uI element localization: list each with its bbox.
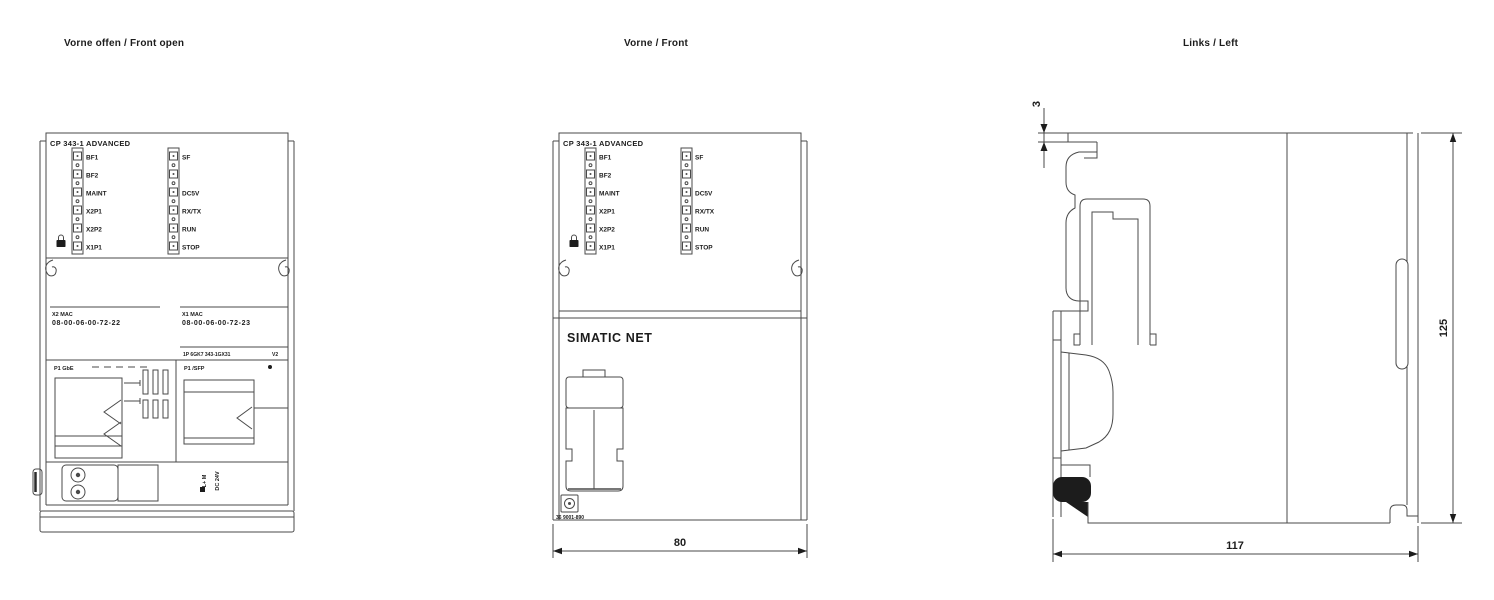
led-dot [173,227,175,229]
led-label: X1P1 [86,245,102,252]
rj45-jack-right [184,380,254,444]
din-rail-hook-profile [1053,142,1097,517]
led-label: BF1 [599,155,612,162]
led-label: BF2 [599,173,612,180]
led-strip-rivet [589,182,592,185]
dimension-top-ledge-3: 3 [1031,101,1048,168]
led-dot [590,245,592,247]
hinge-icon [559,260,570,276]
dimension-arrow [1450,514,1456,523]
led-strip-rivet [589,218,592,221]
led-strip-rivet [172,218,175,221]
led-strip-rivet [76,200,79,203]
fixing-screw-icon [561,495,578,512]
led-label: DC5V [695,191,713,198]
mac-a-value: 08-00-06-00-72-22 [52,320,121,327]
contact-stubs [124,380,140,404]
rear-foot [1390,505,1418,523]
led-label: X1P1 [599,245,615,252]
led-label: STOP [695,245,713,252]
led-strip: SFDC5VRX/TXRUNSTOP [681,148,715,254]
handle-groove [1396,259,1408,369]
led-strip-rivet [76,164,79,167]
brand-label: SIMATIC NET [567,331,653,345]
order-line: 1P 6GK7 343-1GX31 [183,352,231,358]
view-title-front-open: Vorne offen / Front open [64,38,184,49]
view-title-front: Vorne / Front [624,38,689,49]
led-strip-rivet [76,218,79,221]
front-open-view: CP 343-1 ADVANCED BF1BF2MAINTX2P1X2P2X1P… [33,133,294,532]
led-dot [77,155,79,157]
port-compartment: P1 GbE P1 /SFP [46,360,288,462]
vent-slots [143,370,168,418]
led-strip: SFDC5VRX/TXRUNSTOP [168,148,202,254]
locking-screw [1053,477,1091,502]
jack-latch [104,400,121,446]
led-dot [590,155,592,157]
led-dot [77,173,79,175]
led-strip-rivet [685,200,688,203]
led-label: BF1 [86,155,99,162]
indicator-dot [268,365,272,369]
led-label: X2P1 [599,209,615,216]
led-strip-rivet [172,182,175,185]
led-dot [686,173,688,175]
model-label: CP 343-1 ADVANCED [563,139,644,148]
mac-b-value: 08-00-06-00-72-23 [182,320,251,327]
connector-frame [1074,199,1156,345]
led-strip-rivet [76,182,79,185]
led-dot [173,245,175,247]
led-dot [590,227,592,229]
led-label: DC5V [182,191,200,198]
led-strip-rivet [172,236,175,239]
led-strip-rivet [589,200,592,203]
left-side-view: 3 125 117 [1031,101,1462,562]
led-dot [686,155,688,157]
dimension-arrow [1450,133,1456,142]
power-marker-icon [200,487,205,492]
led-strip-rivet [685,218,688,221]
dimension-arrow [1041,124,1048,133]
panel-outline [559,133,801,311]
led-dot [686,227,688,229]
bottom-edge [1088,502,1418,523]
power-terminal-block: L+ M DC 24V [62,465,221,501]
dimension-value: 80 [674,537,686,549]
mac-a-label: X2 MAC [52,312,73,318]
led-label: MAINT [599,191,620,198]
led-label: BF2 [86,173,99,180]
drawing-svg: Vorne offen / Front open Vorne / Front L… [0,0,1494,600]
dimension-arrow [1053,551,1062,557]
led-label: X2P2 [86,227,102,234]
dimension-arrow [1041,142,1048,151]
front-view: CP 343-1 ADVANCED BF1BF2MAINTX2P1X2P2X1P… [553,133,807,558]
terminal-outline [62,465,118,501]
model-label: CP 343-1 ADVANCED [50,139,131,148]
led-dot [77,227,79,229]
led-dot [173,155,175,157]
led-dot [686,191,688,193]
led-strip-rivet [76,236,79,239]
led-dot [590,173,592,175]
terminal-polarity-label: L+ M [202,474,208,487]
led-strip-rivet [589,164,592,167]
led-label: STOP [182,245,200,252]
led-strip-rivet [685,164,688,167]
led-strip: BF1BF2MAINTX2P1X2P2X1P1 [72,148,107,254]
led-label: MAINT [86,191,107,198]
mac-b-label: X1 MAC [182,312,203,318]
led-dot [173,191,175,193]
dimension-value: 117 [1226,540,1244,552]
led-label: X2P2 [599,227,615,234]
door-latch-handle [566,370,623,491]
clip-wedge [1066,502,1088,517]
led-dot [77,209,79,211]
led-label: RX/TX [695,209,715,216]
led-dot [590,191,592,193]
led-strip-rivet [685,182,688,185]
bus-connector [1053,352,1113,517]
dimension-value: 3 [1031,101,1043,107]
port-a-header: P1 GbE [54,366,74,372]
led-strip-rivet [685,236,688,239]
led-label: SF [182,155,190,162]
led-label: SF [695,155,703,162]
led-label: RUN [182,227,196,234]
hinge-icon [46,260,57,276]
port-b-header: P1 /SFP [184,366,205,372]
front-door: SIMATIC NET 36 9001-890 [553,318,807,521]
led-strip-rivet [172,200,175,203]
dimension-height-125: 125 [1421,133,1462,523]
led-label: RX/TX [182,209,202,216]
led-dot [77,191,79,193]
led-dot [173,209,175,211]
dimension-arrow [798,548,807,554]
led-strip: BF1BF2MAINTX2P1X2P2X1P1 [585,148,620,254]
jack-latch [237,407,252,429]
dimension-depth-117: 117 [1053,519,1418,562]
led-panel: CP 343-1 ADVANCED BF1BF2MAINTX2P1X2P2X1P… [559,133,801,311]
dimension-arrow [553,548,562,554]
lock-icon [57,235,66,247]
panel-outline [46,133,288,258]
view-title-left: Links / Left [1183,38,1239,49]
led-dot [686,245,688,247]
led-panel: CP 343-1 ADVANCED BF1BF2MAINTX2P1X2P2X1P… [46,133,288,258]
dimension-width-80: 80 [553,524,807,558]
led-strip-rivet [589,236,592,239]
dimension-value: 125 [1438,319,1450,337]
supply-voltage-label: DC 24V [215,471,221,491]
version-label: V2 [272,352,278,358]
led-label: RUN [695,227,709,234]
technical-drawing-page: Vorne offen / Front open Vorne / Front L… [0,0,1494,600]
dimension-arrow [1409,551,1418,557]
lock-icon [570,235,579,247]
led-label: X2P1 [86,209,102,216]
mac-address-band: X2 MAC 08-00-06-00-72-22 X1 MAC 08-00-06… [50,307,288,358]
led-dot [686,209,688,211]
led-dot [77,245,79,247]
led-dot [590,209,592,211]
led-dot [173,173,175,175]
led-strip-rivet [172,164,175,167]
